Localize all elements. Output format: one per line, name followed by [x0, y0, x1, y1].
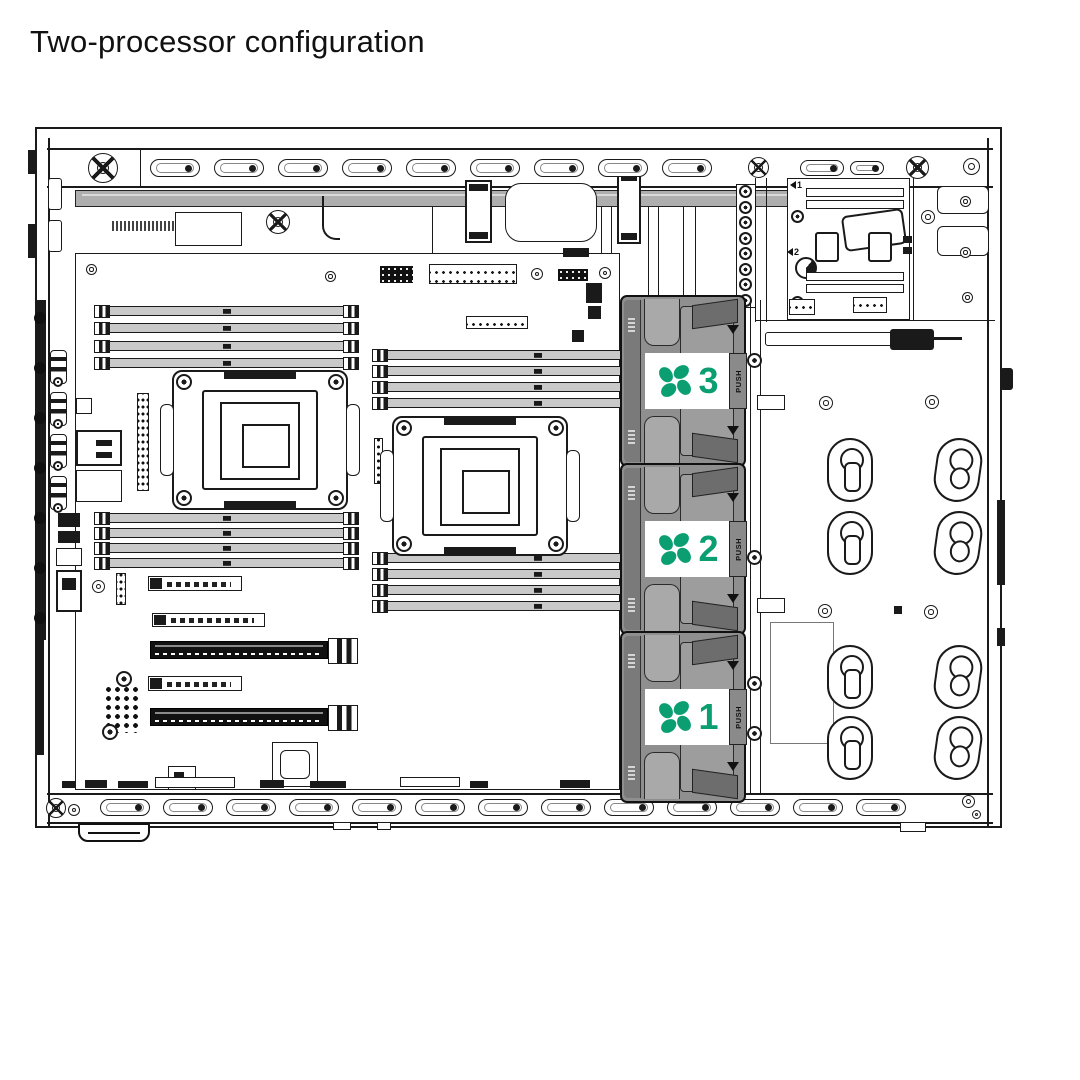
chassis-tab	[997, 628, 1005, 646]
screw	[53, 419, 63, 429]
edge-clip	[48, 178, 62, 210]
connector	[903, 236, 912, 243]
screw	[818, 604, 832, 618]
connector	[85, 780, 107, 788]
frame-line	[648, 207, 649, 296]
connector	[560, 780, 590, 788]
connector	[400, 777, 460, 787]
cpu-socket-2	[388, 412, 572, 560]
panel-outline	[770, 622, 834, 744]
bracket-cap	[621, 233, 637, 240]
edge-bump	[34, 612, 46, 624]
slot-latch	[328, 705, 358, 731]
connector	[310, 781, 346, 788]
screw	[396, 536, 412, 552]
fan-connector-edge	[624, 300, 641, 462]
psu-label-text: 1	[797, 180, 802, 190]
screw	[739, 232, 752, 245]
screw	[960, 247, 971, 258]
fan-housing-shade	[692, 601, 738, 631]
connector	[62, 781, 76, 788]
chip	[280, 750, 310, 779]
power-connector	[806, 284, 904, 293]
screw	[88, 153, 118, 183]
vent-slot	[100, 799, 150, 816]
screw	[53, 377, 63, 387]
rear-port	[58, 531, 80, 543]
bracket-cap	[469, 184, 488, 191]
screw	[747, 550, 762, 565]
socket-die	[462, 470, 510, 514]
power-connector-4pin	[380, 266, 413, 283]
latch-arrow-icon	[727, 661, 739, 670]
divider-line	[140, 150, 141, 186]
fan-push-tab: PUSH	[729, 689, 747, 745]
frame-line	[695, 207, 696, 300]
edge-bump	[34, 412, 46, 424]
fan-label-3: 3	[645, 353, 729, 409]
vent-slot	[541, 799, 591, 816]
screw	[791, 210, 804, 223]
fan-number: 2	[698, 531, 718, 567]
screw	[548, 536, 564, 552]
fan-module-3: PUSH 3	[620, 295, 746, 467]
vent-slot	[163, 799, 213, 816]
screw	[739, 263, 752, 276]
frame-line	[755, 320, 995, 321]
screw	[328, 490, 344, 506]
pcie-x16-slot	[150, 641, 328, 659]
connector	[155, 777, 235, 788]
chassis-line	[47, 822, 993, 824]
fan-module-1: PUSH 1	[620, 631, 746, 803]
vent-slot	[214, 159, 264, 177]
screw	[68, 804, 80, 816]
connector	[76, 398, 92, 414]
retention-bar	[224, 501, 296, 508]
connector	[903, 247, 912, 254]
pin-strip	[116, 573, 126, 605]
fan-grip	[644, 299, 680, 346]
psu-label-text: 2	[794, 247, 799, 257]
vent-slot	[406, 159, 456, 177]
fan-icon	[655, 697, 695, 737]
io-port	[76, 470, 122, 502]
power-connector	[806, 188, 904, 197]
fan-grip	[644, 752, 680, 799]
fan-grip	[644, 635, 680, 682]
screw	[819, 396, 833, 410]
pin-header	[558, 269, 588, 281]
screw	[747, 353, 762, 368]
bracket-curve	[322, 196, 340, 240]
rod-end	[932, 337, 962, 340]
pin-header	[466, 316, 528, 329]
dimm-slot	[95, 558, 358, 568]
fan-number: 1	[698, 699, 718, 735]
rear-port	[58, 513, 80, 527]
socket-wing	[160, 404, 174, 476]
screw	[921, 210, 935, 224]
dimm-slot	[95, 341, 358, 351]
screw	[396, 420, 412, 436]
rear-port-slot	[62, 578, 76, 590]
screw	[86, 264, 97, 275]
screw	[748, 157, 769, 178]
vent-slot	[478, 799, 528, 816]
edge-bump	[34, 312, 46, 324]
latch-arrow-icon	[727, 762, 739, 771]
keyhole-mount	[827, 645, 873, 709]
mount-hole	[894, 606, 902, 614]
screw	[328, 374, 344, 390]
screw	[925, 395, 939, 409]
vent-slot	[278, 159, 328, 177]
rod-clamp	[890, 329, 934, 350]
latch-arrow-icon	[727, 426, 739, 435]
edge-bump	[34, 562, 46, 574]
bracket-cap	[469, 232, 488, 239]
vent-slot	[598, 159, 648, 177]
screw	[739, 201, 752, 214]
screw	[46, 798, 66, 818]
screw	[747, 676, 762, 691]
edge-bump	[34, 462, 46, 474]
chassis-handle	[997, 500, 1005, 585]
screw	[325, 271, 336, 282]
page: Two-processor configuration 1 2 PUSH	[0, 0, 1080, 1080]
retention-bar	[444, 547, 516, 554]
rear-port	[56, 570, 82, 612]
expansion-slot	[148, 676, 242, 691]
screw	[531, 268, 543, 280]
fan-cage-rail	[760, 300, 761, 795]
edge-clip	[48, 220, 62, 252]
vent-slot	[342, 159, 392, 177]
frame-line	[432, 207, 433, 253]
screw	[963, 158, 980, 175]
socket-die	[242, 424, 290, 468]
latch-arrow-icon	[727, 325, 739, 334]
vent-slot	[352, 799, 402, 816]
chassis-handle	[1000, 368, 1013, 390]
power-connector	[806, 272, 904, 281]
foot-tab	[377, 822, 391, 830]
screw	[972, 810, 981, 819]
retention-bar	[444, 418, 516, 425]
screw	[548, 420, 564, 436]
rail-clip	[757, 598, 785, 613]
vent-slot	[534, 159, 584, 177]
frame-line	[913, 178, 914, 320]
screw	[176, 374, 192, 390]
pcie-x16-slot	[150, 708, 328, 726]
atx-connector-24pin	[429, 264, 517, 284]
push-label: PUSH	[734, 370, 743, 393]
pin-block	[789, 299, 815, 315]
connector	[118, 781, 148, 788]
dimm-slot	[95, 323, 358, 333]
psu-connector-label-1: 1	[790, 180, 802, 190]
connector	[586, 283, 602, 303]
edge-bump	[34, 512, 46, 524]
edge-bump	[34, 362, 46, 374]
latch-arrow-icon	[727, 493, 739, 502]
fan-label-2: 2	[645, 521, 729, 577]
chassis-tab	[28, 224, 35, 258]
vent-slot	[850, 161, 884, 175]
dimm-slot	[95, 528, 358, 538]
expansion-slot	[148, 576, 242, 591]
fan-grip	[644, 467, 680, 514]
fan-connector-edge	[624, 636, 641, 798]
rail-clip	[757, 395, 785, 410]
foot-tab	[900, 822, 926, 832]
cpu-socket-1	[168, 366, 352, 514]
dimm-slot	[95, 306, 358, 316]
screw	[960, 196, 971, 207]
fan-housing-shade	[692, 433, 738, 463]
fan-number: 3	[698, 363, 718, 399]
screw	[53, 503, 63, 513]
fan-connector-edge	[624, 468, 641, 630]
io-port	[76, 430, 122, 466]
push-label: PUSH	[734, 706, 743, 729]
panel-cutout	[505, 183, 597, 242]
fan-cage-rail	[750, 300, 751, 795]
screw	[962, 795, 975, 808]
panel-cutout	[175, 212, 242, 246]
connector	[868, 232, 892, 262]
screw	[739, 247, 752, 260]
dimm-slot	[95, 513, 358, 523]
fan-module-2: PUSH 2	[620, 463, 746, 635]
screw	[53, 461, 63, 471]
socket-wing	[566, 450, 580, 522]
page-title: Two-processor configuration	[30, 24, 425, 60]
chassis-foot	[78, 823, 150, 842]
connector	[815, 232, 839, 262]
retention-bar	[224, 372, 296, 379]
connector	[572, 330, 584, 342]
fan-grip	[644, 584, 680, 631]
keyhole-mount	[827, 438, 873, 502]
slot-latch	[328, 638, 358, 664]
pin-strip	[137, 393, 149, 491]
expansion-slot	[152, 613, 265, 627]
chassis-floor-line	[47, 793, 993, 795]
screw	[906, 156, 929, 179]
io-slot	[96, 440, 112, 446]
screw	[739, 216, 752, 229]
screw	[739, 278, 752, 291]
support-rail	[75, 190, 837, 207]
push-label: PUSH	[734, 538, 743, 561]
screw	[176, 490, 192, 506]
io-slot	[96, 452, 112, 458]
fan-icon	[655, 361, 695, 401]
frame-line	[766, 178, 767, 322]
screw	[116, 671, 132, 687]
screw	[962, 292, 973, 303]
keyhole-mount	[827, 511, 873, 575]
fan-push-tab: PUSH	[729, 521, 747, 577]
psu-connector-label-2: 2	[787, 247, 799, 257]
foot-tab	[333, 822, 351, 830]
screw	[92, 580, 105, 593]
power-connector	[806, 200, 904, 209]
latch-arrow-icon	[727, 594, 739, 603]
screw	[102, 724, 118, 740]
chassis-line	[47, 148, 993, 150]
chassis-tab	[28, 150, 35, 174]
socket-wing	[346, 404, 360, 476]
connector	[563, 248, 589, 257]
screw	[739, 185, 752, 198]
screw	[924, 605, 938, 619]
fan-icon	[655, 529, 695, 569]
connector	[260, 780, 284, 788]
vent-slot	[289, 799, 339, 816]
vent-slot	[150, 159, 200, 177]
vent-slot	[793, 799, 843, 816]
keyhole-mount	[827, 716, 873, 780]
fan-push-tab: PUSH	[729, 353, 747, 409]
vent-slot	[226, 799, 276, 816]
rear-port	[56, 548, 82, 566]
fan-grip	[644, 416, 680, 463]
chassis-edge	[36, 640, 44, 755]
fan-label-1: 1	[645, 689, 729, 745]
socket-wing	[380, 450, 394, 522]
pin-block	[853, 297, 887, 313]
vent-slot	[800, 160, 844, 176]
screw	[747, 726, 762, 741]
frame-line	[683, 207, 684, 300]
screw	[266, 210, 290, 234]
fan-housing-shade	[692, 769, 738, 799]
frame-line	[658, 207, 659, 296]
dimm-slot	[95, 543, 358, 553]
screw	[599, 267, 611, 279]
connector	[470, 781, 488, 788]
vent-slot	[415, 799, 465, 816]
vent-slot	[662, 159, 712, 177]
vent-slot	[470, 159, 520, 177]
vent-slot	[856, 799, 906, 816]
connector	[588, 306, 601, 319]
